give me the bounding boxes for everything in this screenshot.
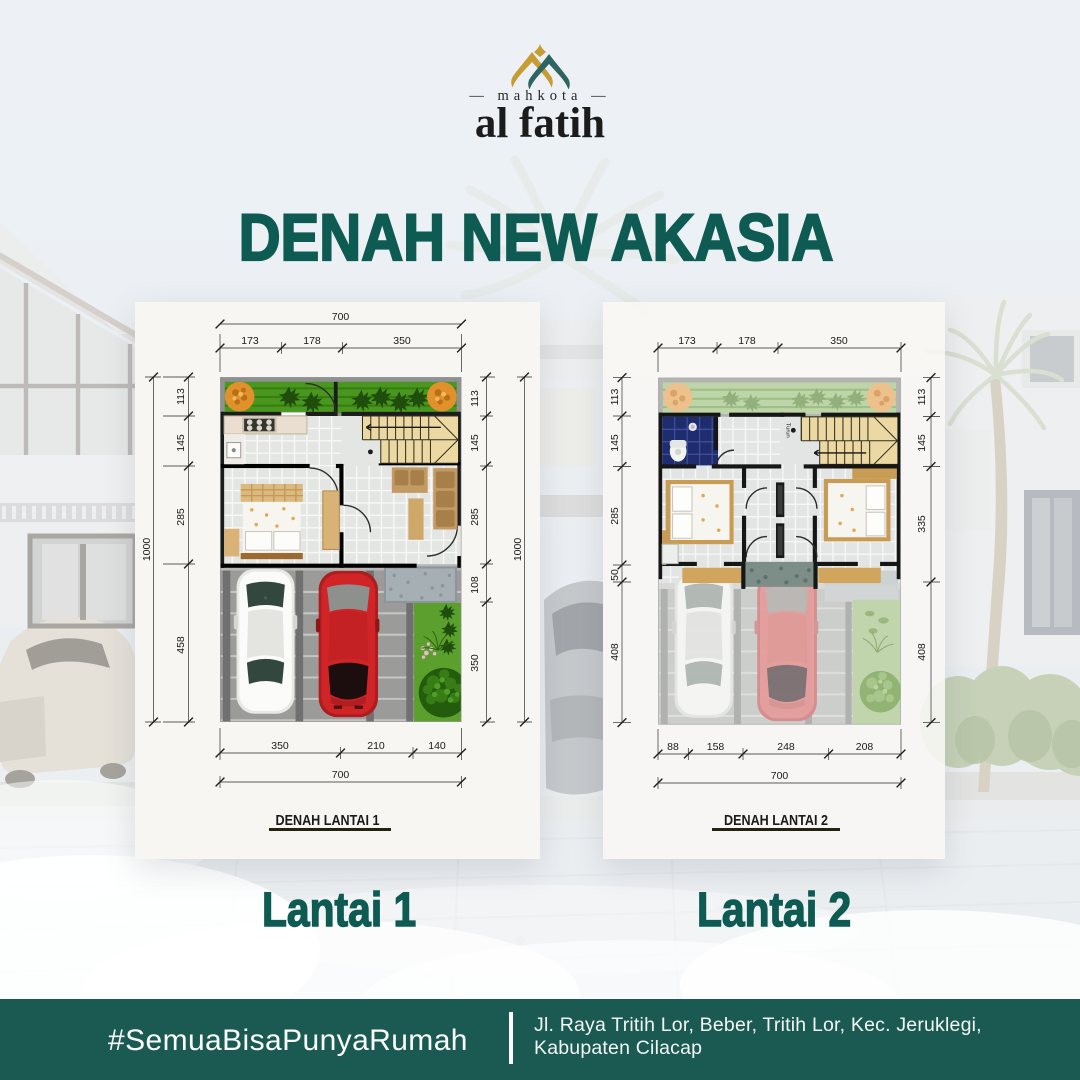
svg-text:145: 145: [469, 434, 481, 452]
svg-text:DENAH LANTAI 1: DENAH LANTAI 1: [276, 813, 380, 829]
svg-text:700: 700: [771, 770, 789, 782]
svg-text:335: 335: [916, 515, 928, 533]
svg-text:178: 178: [738, 335, 756, 347]
svg-text:700: 700: [332, 769, 350, 781]
svg-text:140: 140: [428, 740, 446, 752]
svg-text:145: 145: [175, 434, 187, 452]
svg-text:285: 285: [609, 507, 621, 525]
svg-text:145: 145: [916, 434, 928, 452]
svg-text:113: 113: [609, 388, 621, 405]
svg-text:350: 350: [830, 335, 848, 347]
svg-text:108: 108: [469, 576, 481, 594]
svg-text:113: 113: [469, 390, 481, 407]
svg-text:408: 408: [609, 643, 621, 661]
svg-text:Turun: Turun: [784, 423, 790, 438]
svg-text:408: 408: [916, 643, 928, 661]
svg-text:158: 158: [707, 741, 725, 753]
svg-text:700: 700: [332, 311, 350, 323]
svg-text:50: 50: [609, 569, 621, 581]
svg-text:208: 208: [856, 741, 874, 753]
svg-text:285: 285: [175, 508, 187, 526]
svg-text:113: 113: [916, 388, 928, 405]
svg-text:178: 178: [303, 335, 321, 347]
svg-text:350: 350: [469, 654, 481, 672]
svg-text:285: 285: [469, 508, 481, 526]
svg-text:458: 458: [175, 636, 187, 654]
svg-text:88: 88: [667, 741, 679, 753]
svg-text:145: 145: [609, 434, 621, 452]
svg-text:173: 173: [241, 335, 259, 347]
svg-text:350: 350: [393, 335, 411, 347]
svg-text:350: 350: [271, 740, 289, 752]
svg-text:248: 248: [777, 741, 795, 753]
svg-text:210: 210: [367, 740, 385, 752]
svg-text:1000: 1000: [512, 538, 524, 562]
svg-text:1000: 1000: [141, 538, 153, 562]
svg-text:173: 173: [678, 335, 696, 347]
svg-text:113: 113: [175, 388, 187, 405]
svg-text:DENAH LANTAI 2: DENAH LANTAI 2: [724, 813, 828, 829]
